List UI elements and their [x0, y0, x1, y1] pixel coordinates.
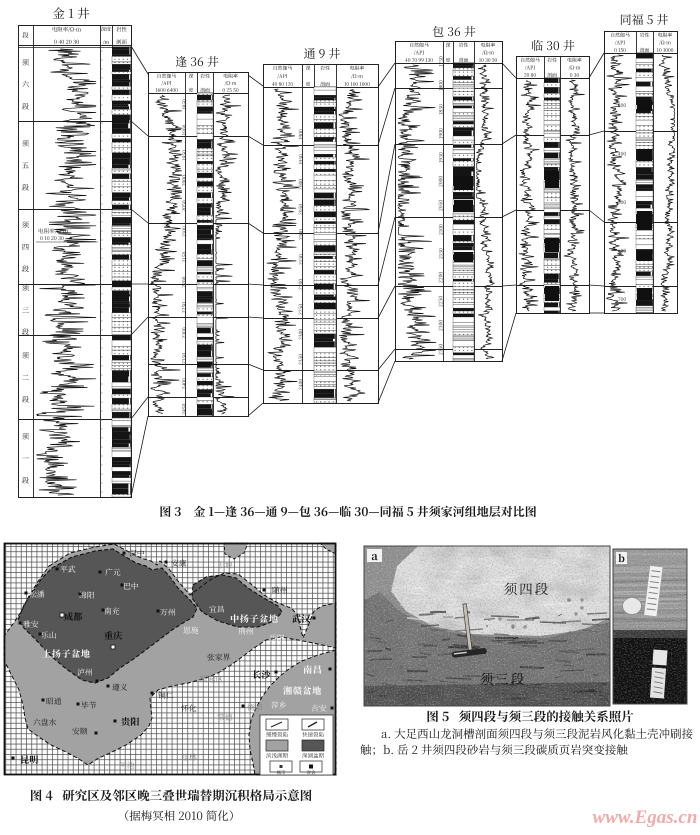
svg-text:www.Egas.cn: www.Egas.cn	[593, 807, 698, 828]
